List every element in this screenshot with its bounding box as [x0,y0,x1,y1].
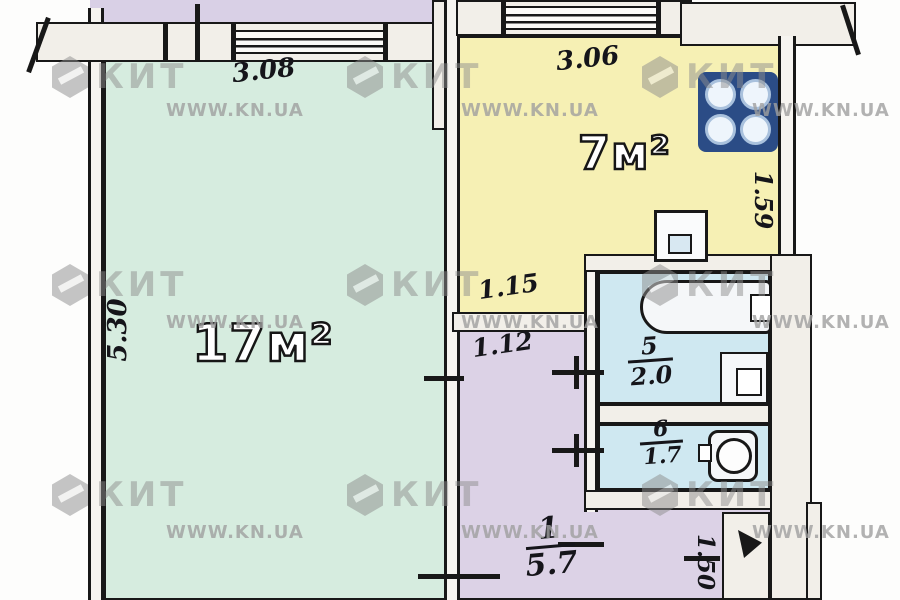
wall-tick [163,24,168,60]
toilet-bottom-wall [584,490,796,510]
living-area-label: 17м² [192,314,334,374]
burner-icon [705,79,736,110]
bathroom-toilet-wall [598,404,770,424]
washbasin-inner [736,368,762,396]
toilet-area: 1.7 [643,443,683,470]
kitchen-side-dim: 1.59 [746,140,782,260]
wall-tick [383,24,388,60]
living-kitchen-divider-wall [444,0,460,600]
bathroom-number-label: 5 2.0 [626,333,674,390]
kitchen-area-label: 7м² [578,126,671,180]
door-mark [418,574,500,579]
hallway-number: 1 [523,512,575,550]
hallway-side-dim: 1.50 [688,517,724,600]
bathtub-tap [750,294,772,322]
toilet-bowl-circle [716,438,752,474]
burner-icon [705,114,736,145]
living-window [234,30,386,54]
door-mark [424,376,464,381]
kit-hexagon-icon [52,264,88,306]
toilet-number-label: 6 1.7 [638,417,685,470]
kit-hexagon-icon [52,474,88,516]
burner-icon [740,79,771,110]
kit-hexagon-icon [52,56,88,98]
wall-tick [656,2,661,34]
floor-plan: 17м² 7м² 3.08 5.30 3.06 1.59 1.15 1.12 1… [0,0,900,600]
hallway-number-label: 1 5.7 [521,512,579,583]
wall-tick [195,4,200,62]
wall-tick [501,2,506,34]
right-outer-wall-step [806,502,822,600]
hallway-area: 5.7 [524,546,579,583]
bathroom-left-wall [584,272,598,512]
bathroom-door-mark [574,356,579,389]
kitchen-window [506,6,656,30]
toilet-door-mark [574,434,579,467]
top-right-wall-slab [680,2,856,46]
wall-tick [231,24,236,60]
kitchen-sink-basin [668,234,692,254]
toilet-cistern [698,444,712,462]
bathroom-area: 2.0 [630,361,673,390]
living-height-dim: 5.30 [100,270,136,390]
